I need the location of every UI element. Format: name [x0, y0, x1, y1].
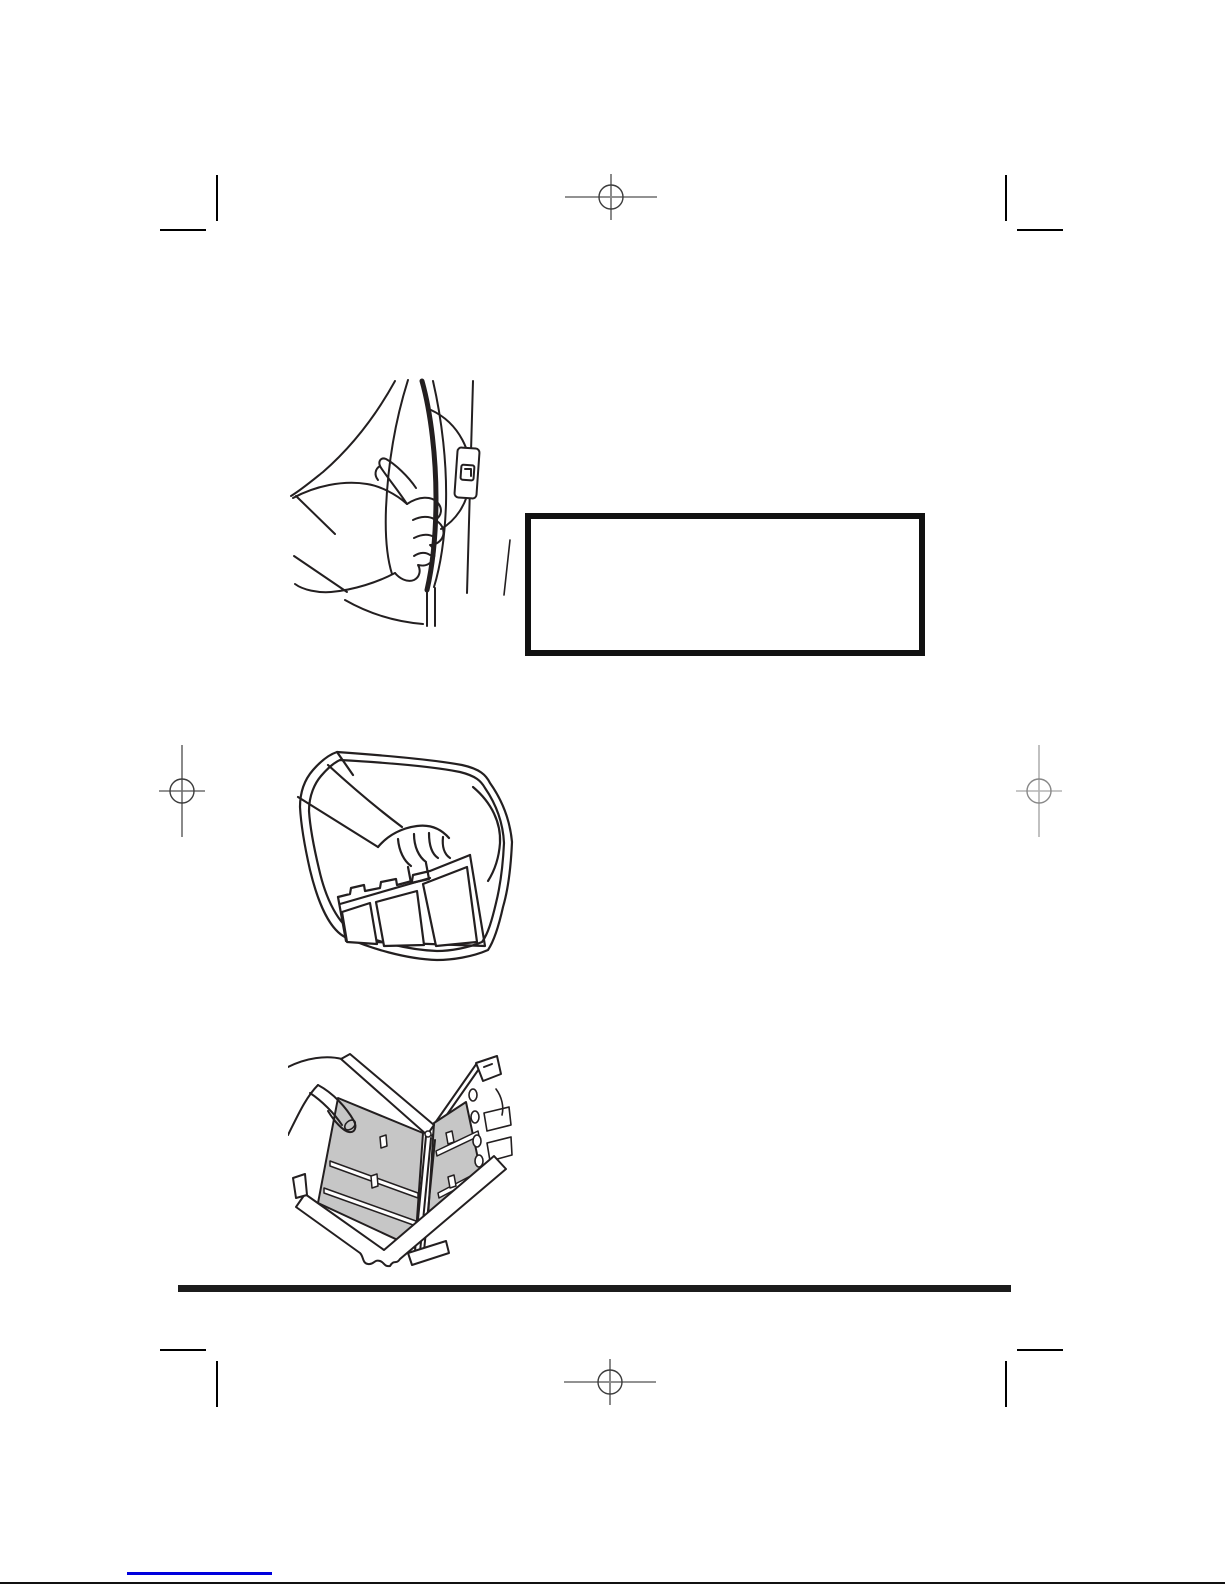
opened-lint-filter-screens-illustration [288, 1045, 513, 1285]
crop-mark-bottom-right-horizontal [1017, 1349, 1063, 1351]
crop-mark-top-left-vertical [216, 175, 218, 221]
hand-removing-lint-filter-illustration [280, 745, 530, 970]
crop-mark-bottom-left-vertical [216, 1361, 218, 1407]
crop-mark-bottom-right-vertical [1005, 1361, 1007, 1407]
page-edge-line [0, 1582, 1225, 1584]
crop-mark-top-left-horizontal [160, 229, 206, 231]
registration-mark-icon-left [159, 745, 205, 837]
hand-opening-dryer-door-illustration [283, 368, 520, 630]
crop-mark-bottom-left-horizontal [160, 1349, 206, 1351]
registration-mark-icon-right [1016, 745, 1062, 837]
section-rule [178, 1285, 1011, 1292]
footer-link[interactable] [127, 1572, 272, 1575]
registration-mark-icon-bottom [564, 1359, 656, 1405]
crop-mark-top-right-vertical [1005, 175, 1007, 221]
crop-mark-top-right-horizontal [1017, 229, 1063, 231]
page-canvas [0, 0, 1225, 1585]
registration-mark-icon-top [565, 174, 657, 220]
callout-box [525, 513, 925, 656]
